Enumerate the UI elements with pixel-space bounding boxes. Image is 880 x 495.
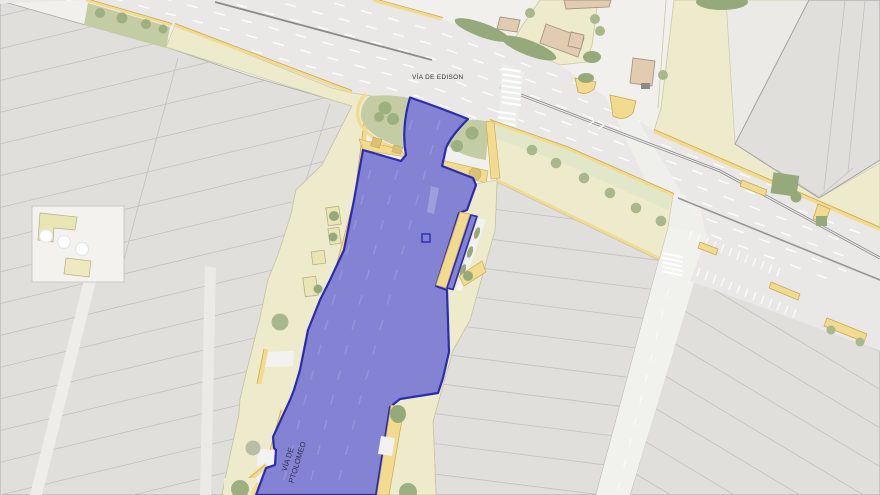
svg-text:VÍA DE EDISON: VÍA DE EDISON [412,72,463,81]
